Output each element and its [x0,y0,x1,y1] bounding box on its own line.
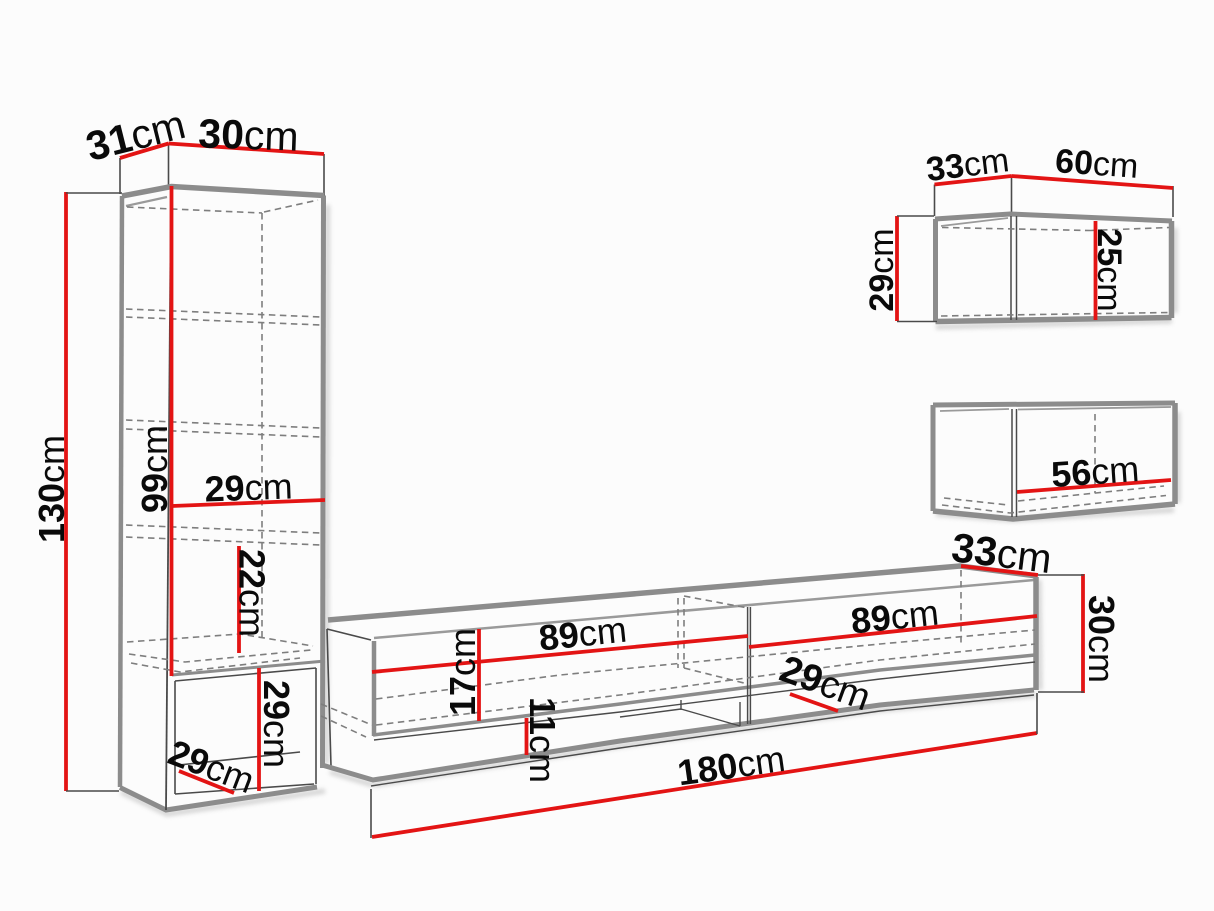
svg-text:25cm: 25cm [1090,228,1128,311]
svg-text:130cm: 130cm [31,435,72,543]
svg-text:22cm: 22cm [232,549,273,637]
svg-text:30cm: 30cm [198,110,300,159]
svg-text:29cm: 29cm [204,465,293,509]
svg-text:30cm: 30cm [1081,595,1122,683]
svg-text:29cm: 29cm [863,228,901,311]
svg-text:99cm: 99cm [134,425,175,513]
svg-text:17cm: 17cm [442,628,483,716]
svg-text:29cm: 29cm [256,680,297,768]
svg-text:56cm: 56cm [1050,448,1141,495]
svg-text:60cm: 60cm [1054,142,1140,186]
svg-text:11cm: 11cm [522,697,563,783]
